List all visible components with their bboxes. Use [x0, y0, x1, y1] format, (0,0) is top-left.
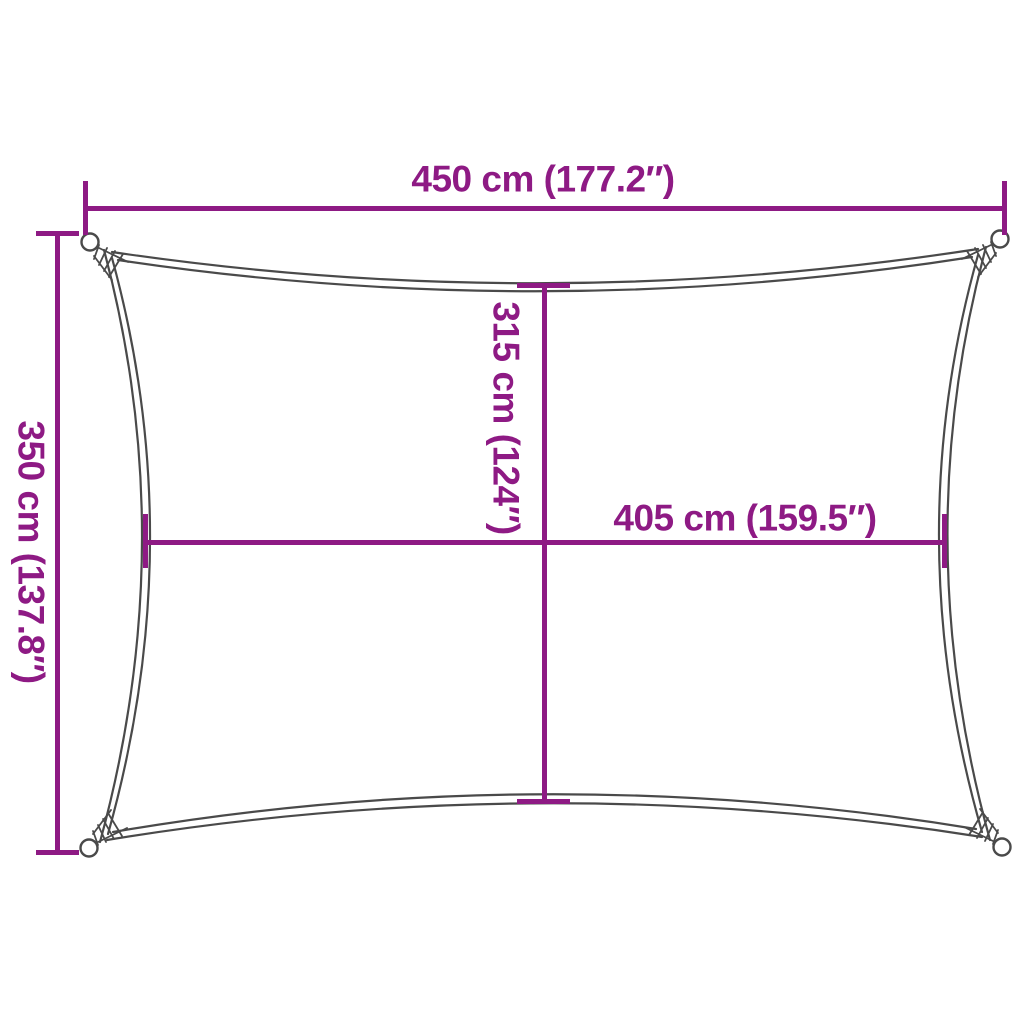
- sail-edge-left-outer: [100, 250, 142, 842]
- dim-top-tick-right: [1002, 181, 1007, 235]
- dim-top-line: [84, 206, 1006, 211]
- dim-center-horizontal-line: [143, 540, 947, 545]
- dim-top-tick-left: [83, 181, 88, 235]
- sail-edge-bottom-outer: [107, 803, 982, 840]
- dim-center-vertical-tick-top: [517, 283, 570, 288]
- corner-ring-bottom-left: [81, 840, 98, 857]
- corner-ring-top-left: [82, 234, 99, 251]
- dim-left-tick-bottom: [36, 850, 79, 855]
- dim-center-vertical-tick-bottom: [517, 799, 570, 804]
- dim-top-label: 450 cm (177.2″): [411, 160, 674, 201]
- dim-center-horizontal-tick-left: [143, 514, 148, 568]
- diagram-canvas: 450 cm (177.2″) 350 cm (137.8″) 315 cm (…: [0, 0, 1024, 1024]
- dim-center-horizontal-label: 405 cm (159.5″): [613, 499, 876, 540]
- sail-edge-right-outer: [947, 247, 990, 840]
- dim-left-tick-top: [36, 231, 79, 236]
- corner-ring-bottom-right: [994, 839, 1011, 856]
- dim-center-horizontal-tick-right: [942, 514, 947, 568]
- sail-edge-top-outer: [112, 249, 978, 283]
- dim-left-label: 350 cm (137.8″): [10, 420, 51, 683]
- dim-left-line: [55, 231, 60, 855]
- dim-center-vertical-label: 315 cm (124″): [485, 301, 526, 534]
